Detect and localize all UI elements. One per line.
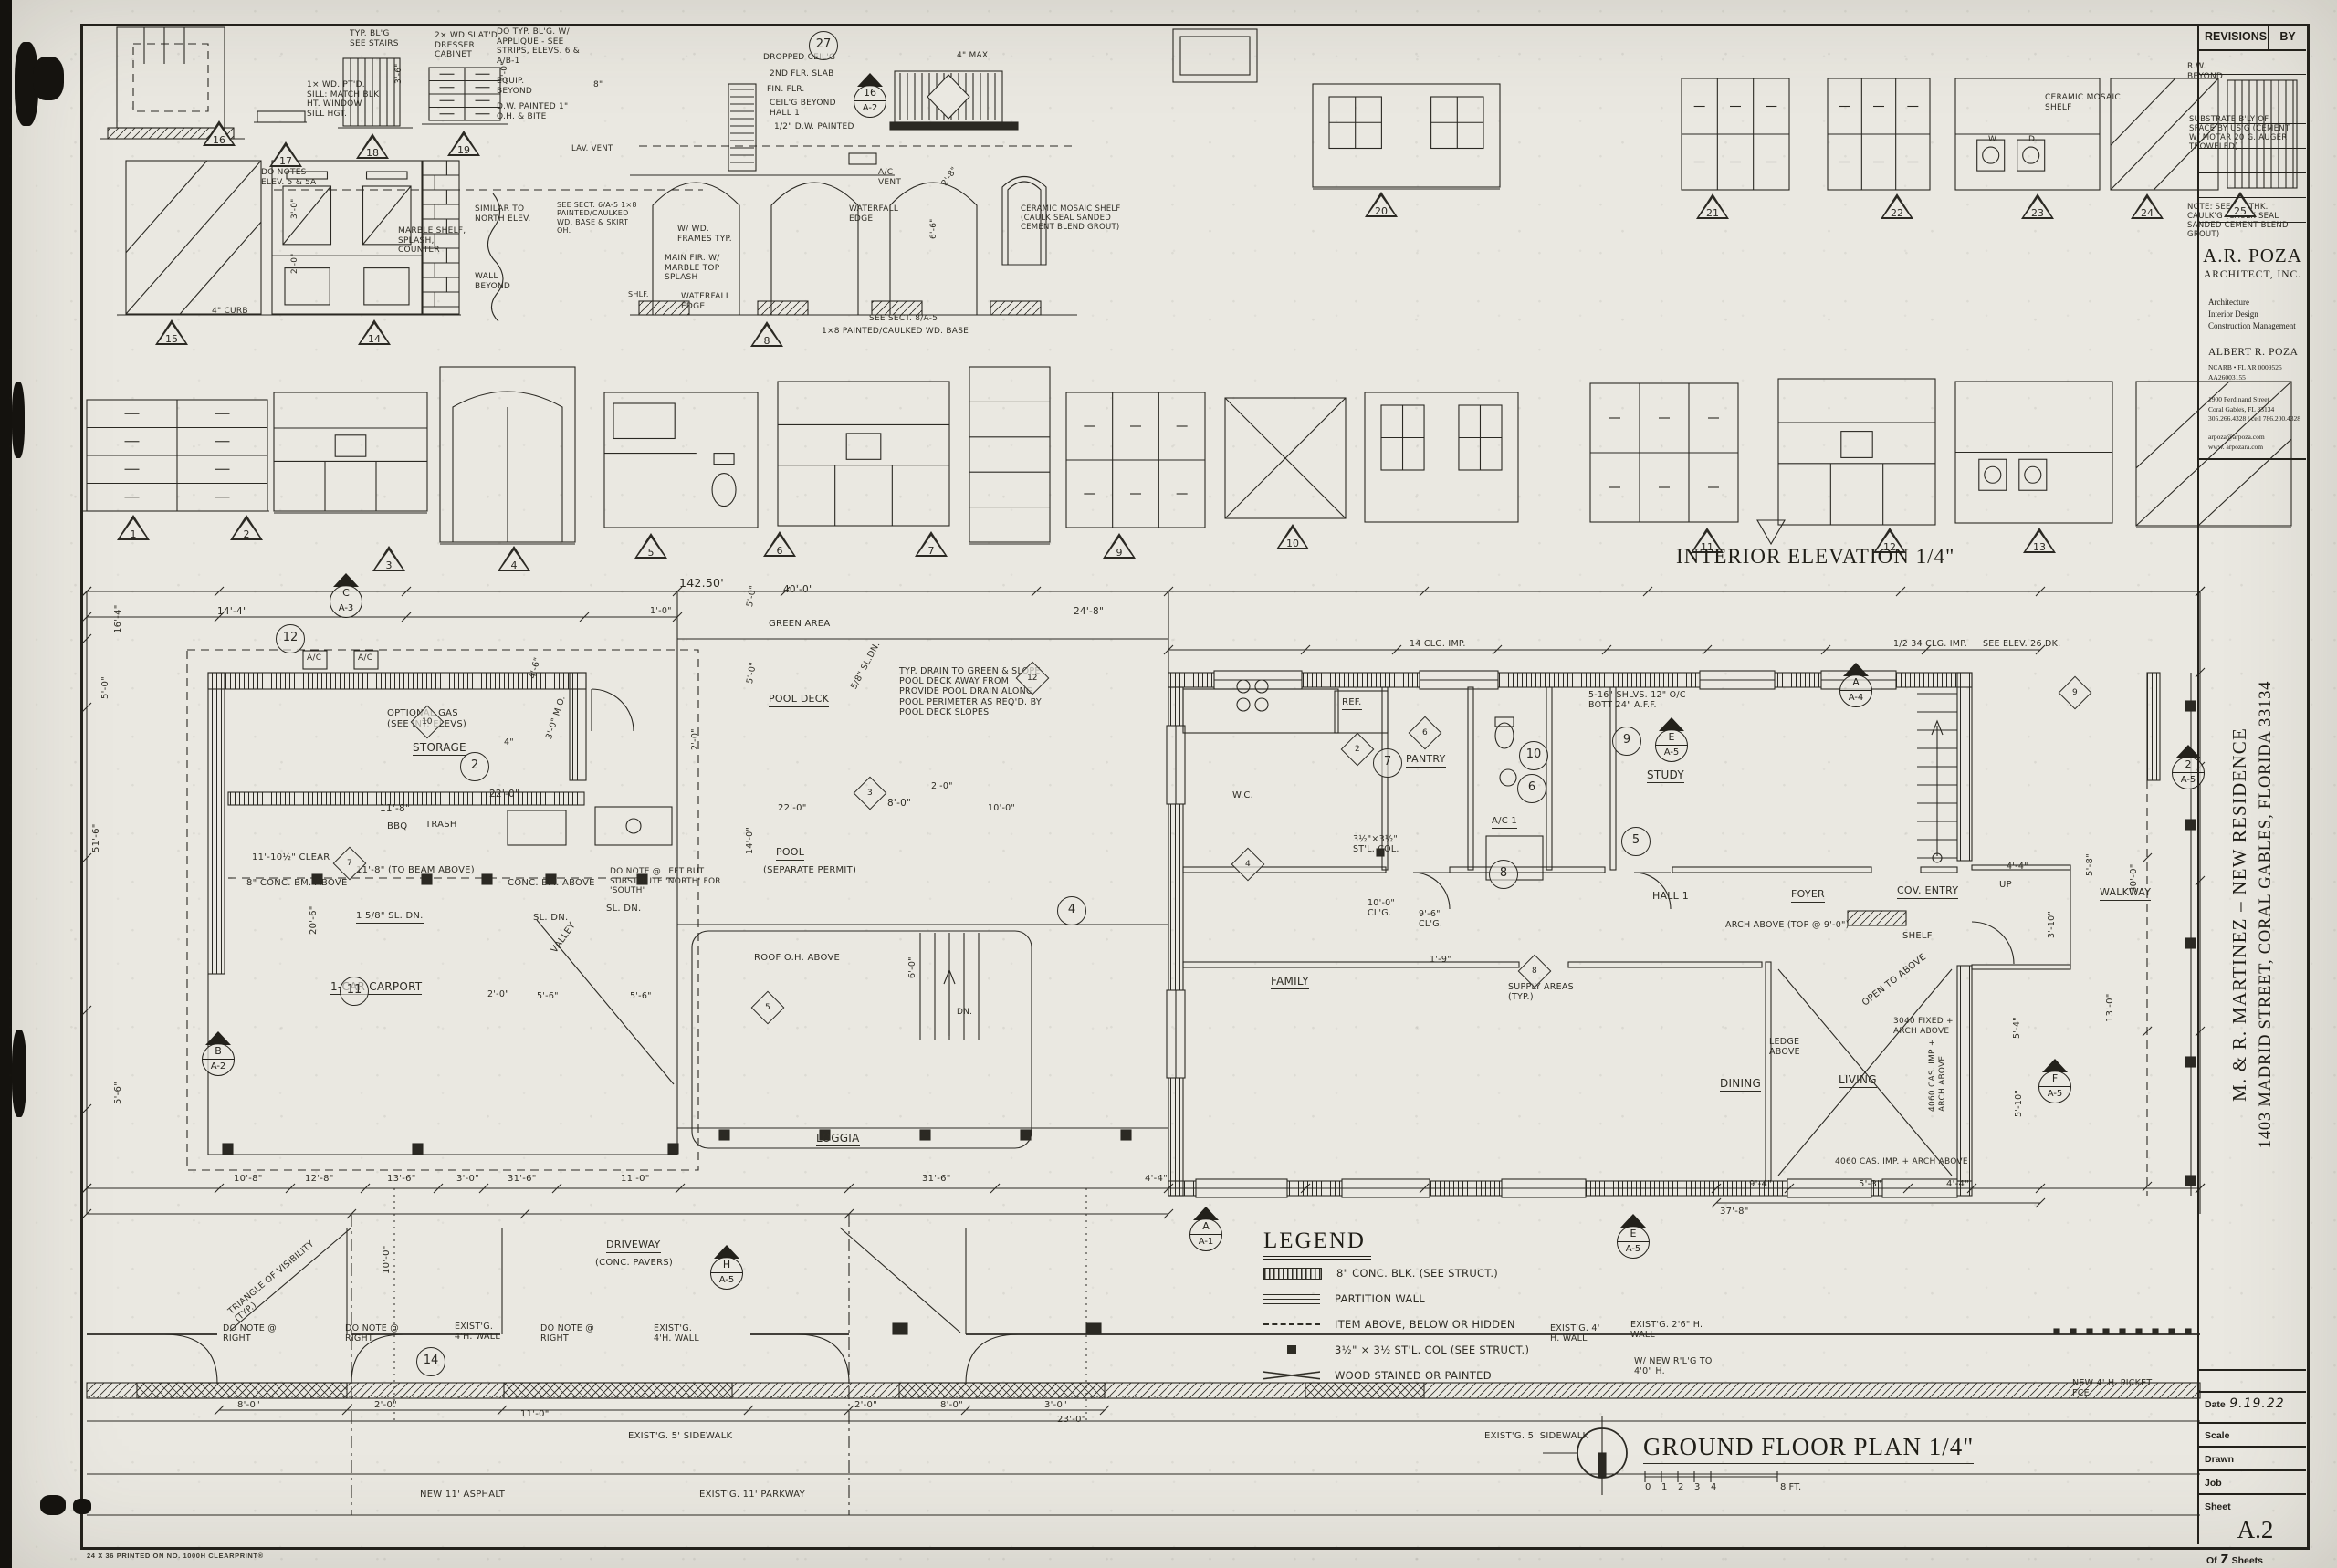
- plan-annotation: 11'-10½" CLEAR: [252, 852, 330, 863]
- plan-annotation: 4'-4": [2007, 862, 2028, 872]
- section-elevation-marker: EA-5: [1616, 1214, 1651, 1259]
- elevation-tag-triangle: 10: [1276, 524, 1309, 549]
- circled-number: 14: [416, 1347, 445, 1376]
- plan-annotation: FIN. FLR.: [767, 85, 805, 95]
- plan-annotation: (SEPARATE PERMIT): [763, 865, 856, 876]
- section-elevation-marker: FA-5: [2038, 1059, 2072, 1103]
- plan-annotation: 3'-10": [2047, 911, 2057, 938]
- plan-annotation: 31'-6": [508, 1174, 537, 1185]
- project-address: 1403 MADRID STREET, CORAL GABLES, FLORID…: [2258, 681, 2277, 1148]
- interior-elevation-title: INTERIOR ELEVATION 1/4": [1676, 544, 1954, 570]
- plan-annotation: ROOF O.H. ABOVE: [754, 953, 840, 964]
- plan-annotation: 2'-0": [690, 728, 700, 750]
- circled-number: 9: [1612, 727, 1641, 756]
- legend-symbol-stl: [1287, 1345, 1296, 1354]
- section-elevation-marker: EA-5: [1654, 717, 1689, 762]
- plan-annotation: 4" CURB: [212, 307, 248, 317]
- firm-email: arpoza@arpoza.com: [2208, 433, 2265, 441]
- plan-annotation: EXIST'G. 4'H. WALL: [654, 1323, 710, 1343]
- legend-item: WOOD STAINED OR PAINTED: [1263, 1364, 1529, 1387]
- scale-label: Scale: [2205, 1430, 2229, 1441]
- circled-number: 8: [1489, 860, 1518, 889]
- date-value: 9.19.22: [2229, 1396, 2284, 1411]
- legend-item: PARTITION WALL: [1263, 1287, 1529, 1311]
- plan-annotation: 16'-4": [113, 604, 124, 633]
- plan-annotation: 13'-0": [2105, 993, 2116, 1022]
- plan-annotation: A/C: [307, 653, 321, 664]
- elevation-tag-triangle: 3: [372, 546, 405, 571]
- firm-services: ArchitectureInterior DesignConstruction …: [2208, 297, 2306, 332]
- plan-annotation: 14'-4": [217, 606, 247, 617]
- field-scale: Scale: [2199, 1422, 2306, 1446]
- plan-annotation: 3½"×3½" ST'L. COL.: [1353, 834, 1417, 854]
- elevation-tag-triangle: 17: [269, 141, 302, 167]
- revision-row: [2199, 148, 2306, 173]
- firm-phone: 305.266.4328 / cell 786.200.4328: [2208, 414, 2300, 423]
- scan-blob: [12, 382, 25, 458]
- sheet-fields: Date 9.19.22 Scale Drawn Job Sheet A.2 O…: [2199, 1369, 2306, 1544]
- plan-annotation: W.C.: [1232, 790, 1253, 801]
- plan-annotation: 6'-0": [907, 956, 917, 978]
- revision-row: [2199, 172, 2306, 198]
- plan-annotation: SEE ELEV. 26 DK.: [1983, 639, 2060, 649]
- plan-annotation: LIVING: [1839, 1073, 1877, 1088]
- elevation-tag-triangle: 18: [356, 133, 389, 159]
- legend: LEGEND 8" CONC. BLK. (SEE STRUCT.)PARTIT…: [1263, 1228, 1529, 1387]
- plan-annotation: 4" MAX: [957, 51, 988, 61]
- plan-annotation: DO NOTE @ RIGHT: [540, 1323, 615, 1343]
- plan-annotation: MAIN FIR. W/ MARBLE TOP SPLASH: [665, 254, 728, 283]
- plan-annotation: NEW 11' ASPHALT: [420, 1490, 505, 1500]
- revision-row: [2199, 74, 2306, 99]
- firm-license-1: NCARB • FL AR 0009525: [2208, 363, 2282, 371]
- scale-tick-label: 2: [1678, 1482, 1683, 1492]
- legend-label: 3½" × 3½ ST'L. COL (SEE STRUCT.): [1335, 1343, 1529, 1356]
- legend-label: 8" CONC. BLK. (SEE STRUCT.): [1336, 1267, 1498, 1280]
- firm-address-1: 1900 Ferdinand Street: [2208, 395, 2269, 403]
- plan-annotation: 2'-0": [487, 989, 509, 999]
- plan-annotation: 14'-0": [745, 827, 755, 854]
- plan-annotation: POOL DECK: [769, 694, 829, 707]
- revision-row: [2199, 197, 2306, 223]
- elevation-tag-triangle: 20: [1365, 192, 1398, 217]
- plan-annotation: CEIL'G BEYOND HALL 1: [770, 99, 852, 118]
- legend-label: PARTITION WALL: [1335, 1292, 1425, 1305]
- plan-annotation: 10'-0": [382, 1245, 393, 1274]
- plan-annotation: SUPPLY AREAS (TYP.): [1508, 982, 1581, 1002]
- plan-annotation: POOL: [776, 847, 804, 861]
- plan-annotation: SL. DN.: [533, 913, 568, 924]
- project-title-block: M. & R. MARTINEZ – NEW RESIDENCE 1403 MA…: [2199, 460, 2306, 1369]
- plan-annotation: DRIVEWAY: [606, 1239, 661, 1253]
- plan-annotation: MARBLE SHELF, SPLASH, COUNTER: [398, 226, 473, 256]
- plan-annotation: 4": [504, 737, 514, 747]
- plan-annotation: 12'-8": [305, 1174, 334, 1185]
- plan-annotation: WATERFALL EDGE: [681, 292, 736, 311]
- plan-annotation: (CONC. PAVERS): [595, 1258, 673, 1269]
- legend-symbol-partition: [1263, 1294, 1320, 1304]
- section-elevation-marker: HA-5: [709, 1245, 744, 1290]
- circled-number: 10: [1519, 741, 1548, 770]
- revision-row: [2199, 99, 2306, 124]
- plan-annotation: 2× WD SLAT'D. DRESSER CABINET: [435, 31, 515, 60]
- title-block: REVISIONS BY A.R. POZA ARCHITECT, INC. A…: [2197, 24, 2306, 1544]
- plan-annotation: HALL 1: [1652, 891, 1689, 904]
- plan-annotation: LAV. VENT: [571, 144, 613, 153]
- scanned-blueprint-sheet: DO TYP. BL'G. W/ APPLIQUE - SEE STRIPS, …: [0, 0, 2337, 1568]
- job-label: Job: [2205, 1478, 2222, 1489]
- scan-edge: [0, 0, 12, 1568]
- plan-annotation: 5-16" SHLVS. 12" O/C BOTT 24" A.F.F.: [1588, 690, 1687, 710]
- plan-annotation: 4'-4": [1946, 1179, 1969, 1190]
- firm-type: ARCHITECT, INC.: [2199, 269, 2306, 280]
- print-note: 24 X 36 PRINTED ON NO. 1000H CLEARPRINT®: [87, 1552, 264, 1560]
- elevation-tag-triangle: 6: [763, 531, 796, 557]
- plan-annotation: SEE SECT. 8/A-5: [869, 314, 938, 324]
- plan-annotation: SL. DN.: [606, 904, 641, 915]
- plan-annotation: SIMILAR TO NORTH ELEV.: [475, 204, 535, 224]
- plan-annotation: 6'-6": [929, 218, 939, 239]
- scale-tick-label: 3: [1694, 1482, 1700, 1492]
- plan-annotation: 9'-6" CL'G.: [1419, 909, 1464, 929]
- plan-annotation: 11'-8" (TO BEAM ABOVE): [356, 865, 475, 876]
- plan-annotation: 1/2 34 CLG. IMP.: [1893, 639, 1967, 649]
- scan-blob: [12, 1030, 26, 1117]
- plan-annotation: SHELF: [1902, 931, 1933, 942]
- plan-annotation: EXIST'G. 4'H. WALL: [455, 1322, 511, 1342]
- plan-annotation: 10'-8": [234, 1174, 263, 1185]
- plan-annotation: SHLF.: [628, 290, 649, 298]
- firm-web: www. arpozara.com: [2208, 443, 2263, 451]
- plan-annotation: BBQ: [387, 821, 407, 832]
- elevation-tag-triangle: 5: [634, 533, 667, 559]
- scale-tick-label: 4: [1711, 1482, 1716, 1492]
- plan-annotation: TRASH: [425, 820, 457, 831]
- plan-annotation: W/ NEW R'L'G TO 4'0" H.: [1634, 1356, 1718, 1376]
- elevation-tag-triangle: 8: [750, 321, 783, 347]
- legend-label: WOOD STAINED OR PAINTED: [1335, 1369, 1492, 1382]
- plan-annotation: 5'-6": [537, 991, 559, 1001]
- plan-annotation: WATERFALL EDGE: [849, 204, 904, 224]
- elevation-tag-triangle: 7: [915, 531, 948, 557]
- plan-annotation: EXIST'G. 5' SIDEWALK: [1484, 1431, 1588, 1442]
- firm-address-2: Coral Gables, FL 33134: [2208, 405, 2274, 413]
- circled-number: 5: [1621, 827, 1651, 856]
- plan-annotation: D.: [2028, 135, 2038, 145]
- plan-annotation: WALKWAY: [2100, 887, 2151, 901]
- revision-row: [2199, 123, 2306, 149]
- plan-annotation: 4'-4": [1145, 1174, 1168, 1185]
- of-value: 7: [2220, 1553, 2229, 1567]
- plan-annotation: 11'-0": [520, 1409, 550, 1420]
- plan-annotation: DO NOTE @ LEFT BUT SUBSTITUTE 'NORTH' FO…: [610, 867, 733, 896]
- circled-number: 2: [460, 752, 489, 781]
- plan-annotation: 2'-0": [290, 253, 300, 274]
- scale-tick-label: 0: [1645, 1482, 1651, 1492]
- section-elevation-marker: AA-1: [1189, 1207, 1223, 1251]
- plan-annotation: REF.: [1342, 697, 1362, 710]
- plan-annotation: 10'-0" CL'G.: [1368, 898, 1418, 918]
- plan-annotation: DO NOTE @ RIGHT: [345, 1323, 400, 1343]
- plan-annotation: 5'-3": [1859, 1179, 1881, 1190]
- plan-annotation: UP: [1999, 880, 2012, 891]
- plan-annotation: 1'-0": [650, 606, 672, 616]
- field-spacer: [2199, 1369, 2306, 1391]
- elevation-tag-triangle: 2: [230, 515, 263, 540]
- field-sheet: Sheet A.2 Of 7 Sheets: [2199, 1493, 2306, 1544]
- project-name: M. & R. MARTINEZ – NEW RESIDENCE: [2229, 681, 2252, 1148]
- plan-annotation: SEE SECT. 6/A-5 1×8 PAINTED/CAULKED WD. …: [557, 201, 644, 235]
- field-drawn: Drawn: [2199, 1446, 2306, 1469]
- plan-annotation: FAMILY: [1271, 975, 1309, 989]
- plan-annotation: W.: [1988, 135, 1998, 145]
- section-elevation-marker: AA-4: [1839, 663, 1873, 707]
- plan-annotation: 1×8 PAINTED/CAULKED WD. BASE: [822, 327, 969, 337]
- elevation-tag-triangle: 4: [498, 546, 530, 571]
- plan-annotation: 22'-0": [489, 789, 519, 800]
- plan-annotation: LOGGIA: [816, 1132, 860, 1146]
- circled-number: 6: [1517, 774, 1546, 803]
- plan-annotation: 11'-8": [380, 803, 410, 814]
- scan-blob: [73, 1499, 91, 1514]
- plan-annotation: 1 5/8" SL. DN.: [356, 911, 424, 924]
- plan-annotation: 5'-10": [2014, 1090, 2024, 1117]
- firm-license-2: AA26003155: [2208, 373, 2246, 382]
- plan-annotation: 8'-0": [940, 1400, 963, 1411]
- scale-end-label: 8 FT.: [1780, 1482, 1801, 1492]
- plan-annotation: DINING: [1720, 1077, 1761, 1092]
- plan-annotation: CERAMIC MOSAIC SHELF: [2045, 93, 2123, 112]
- plan-annotation: 51'-6": [91, 823, 102, 852]
- firm-service: Architecture: [2208, 297, 2306, 308]
- plan-annotation: 5'-8": [2085, 853, 2096, 876]
- plan-annotation: 23'-0": [1057, 1415, 1086, 1426]
- elevation-tag-triangle: 1: [117, 515, 150, 540]
- plan-annotation: W/ WD. FRAMES TYP.: [677, 225, 738, 244]
- plan-annotation: CERAMIC MOSAIC SHELF (CAULK SEAL SANDED …: [1021, 204, 1121, 232]
- legend-symbol-block: [1263, 1268, 1322, 1280]
- plan-annotation: 3'-0": [290, 198, 300, 219]
- plan-annotation: FOYER: [1791, 889, 1825, 903]
- sheet-number: A.2: [2205, 1516, 2306, 1544]
- firm-license: NCARB • FL AR 0009525 AA26003155: [2208, 363, 2306, 382]
- elevation-tag-triangle: 14: [358, 319, 391, 345]
- section-elevation-marker: 16A-2: [853, 73, 887, 118]
- plan-annotation: 3'-0": [500, 61, 510, 82]
- elevation-tag-triangle: 13: [2023, 528, 2056, 553]
- legend-symbol-wood: [1263, 1370, 1320, 1381]
- circled-number: 11: [340, 977, 369, 1006]
- of-label: Of: [2206, 1555, 2217, 1566]
- plan-annotation: 3'-0": [456, 1174, 479, 1185]
- plan-annotation: 3'-6": [394, 63, 404, 84]
- plan-annotation: DO NOTES ELEV. 5 & 5A: [261, 168, 332, 187]
- plan-annotation: 10'-0": [988, 803, 1015, 813]
- plan-annotation: LEDGE ABOVE: [1769, 1037, 1824, 1057]
- sheet-label: Sheet: [2205, 1501, 2231, 1512]
- firm-address: 1900 Ferdinand Street Coral Gables, FL 3…: [2208, 395, 2306, 424]
- drawn-label: Drawn: [2205, 1454, 2234, 1465]
- plan-annotation: PANTRY: [1406, 754, 1446, 768]
- plan-annotation: 5'-6": [630, 991, 652, 1001]
- plan-annotation: 1/2" D.W. PAINTED: [774, 122, 854, 132]
- revision-row: [2199, 49, 2306, 75]
- plan-annotation: 24'-8": [1074, 606, 1104, 617]
- plan-annotation: TYP. BL'G SEE STAIRS: [350, 29, 408, 48]
- plan-annotation: 37'-8": [1720, 1207, 1749, 1218]
- plan-annotation: 142.50': [679, 577, 724, 591]
- firm-service: Construction Management: [2208, 320, 2306, 332]
- plan-annotation: 13'-6": [387, 1174, 416, 1185]
- revisions-by-label: BY: [2268, 24, 2306, 49]
- plan-annotation: NEW 4' H. PICKET FCE.: [2072, 1378, 2156, 1398]
- plan-annotation: A/C: [358, 653, 372, 664]
- plan-annotation: 31'-6": [922, 1174, 951, 1185]
- legend-label: ITEM ABOVE, BELOW OR HIDDEN: [1335, 1318, 1515, 1331]
- firm-service: Interior Design: [2208, 308, 2306, 320]
- plan-annotation: CONC. BM. ABOVE: [508, 878, 595, 889]
- plan-annotation: 5'-0": [100, 676, 111, 699]
- plan-annotation: 11'-0": [621, 1174, 650, 1185]
- revisions-label: REVISIONS: [2199, 30, 2268, 43]
- revisions-header: REVISIONS BY: [2199, 24, 2306, 51]
- plan-annotation: 14 CLG. IMP.: [1410, 639, 1466, 649]
- plan-annotation: 40'-0": [783, 584, 813, 595]
- architect-block: A.R. POZA ARCHITECT, INC. ArchitectureIn…: [2199, 225, 2306, 460]
- section-elevation-marker: CA-3: [329, 573, 363, 618]
- plan-annotation: 2'-0": [854, 1400, 877, 1411]
- plan-annotation: 2'-0": [374, 1400, 397, 1411]
- elevation-tag-triangle: 15: [155, 319, 188, 345]
- plan-annotation: DO NOTE @ RIGHT: [223, 1323, 288, 1343]
- plan-annotation: 20'-6": [309, 905, 320, 935]
- firm-contact: arpoza@arpoza.com www. arpozara.com: [2208, 432, 2306, 453]
- plan-annotation: 5'-4": [2012, 1017, 2022, 1039]
- plan-annotation: 3'-0": [1044, 1400, 1067, 1411]
- plan-annotation: EXIST'G. 5' SIDEWALK: [628, 1431, 732, 1442]
- firm-principal: ALBERT R. POZA: [2208, 347, 2306, 358]
- sheets-label: Sheets: [2232, 1555, 2263, 1566]
- elevation-tag-triangle: 24: [2131, 193, 2164, 219]
- plan-annotation: 22'-0": [778, 803, 807, 814]
- section-elevation-marker: BA-2: [201, 1031, 236, 1076]
- plan-annotation: 1'-9": [1430, 955, 1451, 965]
- plan-annotation: 2'-0": [931, 781, 953, 791]
- plan-annotation: 4060 CAS. IMP. + ARCH ABOVE: [1835, 1157, 1986, 1167]
- plan-annotation: 9'-4": [1749, 1179, 1772, 1190]
- circled-number: 4: [1057, 896, 1086, 925]
- plan-annotation: EXIST'G. 4' H. WALL: [1550, 1323, 1609, 1343]
- scan-blob: [33, 57, 64, 100]
- elevation-tag-triangle: 9: [1103, 533, 1136, 559]
- legend-item: ITEM ABOVE, BELOW OR HIDDEN: [1263, 1312, 1529, 1336]
- plan-annotation: 4060 CAS. IMP + ARCH ABOVE: [1928, 1025, 1947, 1112]
- field-date: Date 9.19.22: [2199, 1391, 2306, 1422]
- date-label: Date: [2205, 1399, 2226, 1410]
- plan-annotation: 8'-0": [887, 798, 911, 809]
- legend-items: 8" CONC. BLK. (SEE STRUCT.)PARTITION WAL…: [1263, 1261, 1529, 1387]
- plan-annotation: 8" CONC. BM. ABOVE: [246, 878, 348, 889]
- plan-annotation: ARCH ABOVE (TOP @ 9'-0"): [1725, 920, 1876, 930]
- plan-annotation: 5'-6": [113, 1082, 124, 1104]
- circled-number: 12: [276, 624, 305, 653]
- plan-annotation: GREEN AREA: [769, 619, 830, 630]
- plan-annotation: WALL BEYOND: [475, 272, 520, 291]
- elevation-tag-triangle: 21: [1696, 193, 1729, 219]
- field-job: Job: [2199, 1469, 2306, 1493]
- elevation-tag-triangle: 19: [447, 131, 480, 156]
- plan-annotation: 30'-0": [2129, 863, 2140, 893]
- ground-floor-plan-title: GROUND FLOOR PLAN 1/4": [1643, 1433, 1974, 1464]
- elevation-tag-triangle: 16: [203, 120, 236, 146]
- legend-item: 3½" × 3½ ST'L. COL (SEE STRUCT.): [1263, 1338, 1529, 1362]
- circled-number: 7: [1373, 748, 1402, 778]
- legend-symbol-dashed: [1263, 1323, 1320, 1325]
- sheet-of-row: Of 7 Sheets: [2205, 1553, 2306, 1567]
- scan-blob: [40, 1495, 66, 1515]
- circled-number: 27: [809, 31, 838, 60]
- scale-tick-label: 1: [1661, 1482, 1667, 1492]
- plan-annotation: 8'-0": [237, 1400, 260, 1411]
- plan-annotation: STUDY: [1647, 768, 1684, 783]
- plan-annotation: A/C 1: [1492, 816, 1517, 829]
- plan-annotation: A/C VENT: [878, 168, 915, 187]
- legend-title: LEGEND: [1263, 1228, 1371, 1260]
- elevation-tag-triangle: 22: [1881, 193, 1913, 219]
- plan-annotation: STORAGE: [413, 741, 466, 756]
- firm-name: A.R. POZA: [2199, 245, 2306, 267]
- plan-annotation: DN.: [957, 1008, 972, 1018]
- plan-annotation: COV. ENTRY: [1897, 885, 1958, 899]
- plan-annotation: 8": [593, 80, 603, 90]
- elevation-tag-triangle: 23: [2021, 193, 2054, 219]
- plan-annotation: D.W. PAINTED 1" O.H. & BITE: [497, 102, 573, 121]
- legend-item: 8" CONC. BLK. (SEE STRUCT.): [1263, 1261, 1529, 1285]
- plan-annotation: 2ND FLR. SLAB: [770, 69, 834, 79]
- plan-annotation: EXIST'G. 2'6" H. WALL: [1630, 1320, 1705, 1340]
- plan-annotation: 1× WD. PT'D. SILL: MATCH BLK HT. WINDOW …: [307, 80, 380, 119]
- plan-annotation: EXIST'G. 11' PARKWAY: [699, 1490, 805, 1500]
